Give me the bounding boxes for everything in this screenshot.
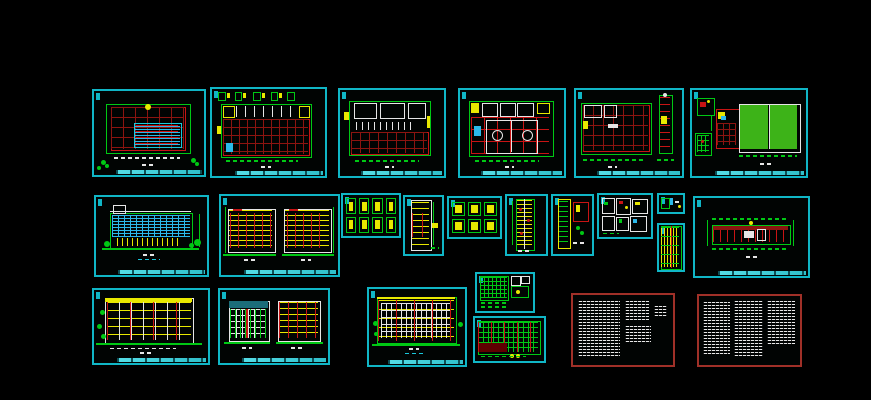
cad-linework (482, 103, 499, 117)
layout-marker (96, 93, 100, 100)
cad-linework (559, 201, 568, 246)
cad-linework (707, 220, 708, 247)
stair-detail-a (505, 194, 548, 256)
drawing-label (143, 254, 156, 256)
cad-linework (576, 226, 580, 230)
door-elevation (372, 198, 382, 214)
detail-cell-fill (349, 220, 354, 229)
cad-linework (511, 120, 512, 152)
door-elevation (386, 217, 396, 233)
drawing-label (746, 256, 757, 258)
detail-cell-fill (487, 205, 493, 213)
cad-linework (481, 356, 527, 357)
door-elevation (372, 217, 382, 233)
tree (100, 310, 105, 315)
layout-marker (342, 92, 346, 99)
cad-linework (217, 126, 222, 135)
detail-cell-fill (455, 205, 461, 213)
detail-cell-fill (389, 202, 394, 211)
general-notes-2 (697, 294, 802, 367)
cad-linework (604, 105, 618, 118)
notes-text (734, 301, 762, 358)
cad-linework (299, 106, 310, 118)
cad-linework (793, 220, 794, 247)
cad-linework (412, 213, 430, 237)
cad-linework (474, 126, 481, 136)
dimension-line (110, 348, 176, 349)
drawing-label (518, 250, 531, 252)
cad-linework (675, 201, 681, 203)
section-elevation (92, 288, 210, 365)
tree (97, 166, 101, 170)
door-elevation (468, 202, 481, 216)
floor-plan-2 (210, 87, 327, 178)
door-elevation (452, 202, 497, 233)
level-dimension (333, 207, 334, 253)
misc-detail (657, 193, 685, 214)
cad-linework (583, 121, 587, 129)
cad-linework (138, 259, 160, 260)
legend-symbol (218, 92, 227, 102)
door-elevation (359, 217, 369, 233)
cad-linework (500, 103, 517, 117)
panel-title-bar (235, 171, 323, 175)
drawing-label (409, 348, 419, 350)
dimension-line (226, 160, 298, 162)
cad-linework (405, 353, 422, 354)
schedule-detail (657, 223, 685, 272)
cad-linework (223, 119, 308, 154)
notes-text (654, 306, 667, 316)
ground-line (276, 342, 322, 344)
drawing-label (385, 166, 394, 168)
layout-marker (462, 92, 466, 99)
cad-linework (584, 105, 602, 118)
cad-linework (431, 247, 439, 249)
ground-line (224, 342, 269, 344)
door-elevation (484, 202, 497, 216)
dimension-line (712, 218, 789, 220)
columns (287, 213, 328, 248)
cad-linework (744, 231, 754, 238)
tree (373, 321, 378, 326)
rear-elevation (367, 287, 467, 367)
dimension-line (739, 155, 797, 157)
cad-linework (516, 290, 520, 294)
notes-text (625, 301, 649, 321)
panel-title-bar (361, 171, 442, 175)
notes-text (578, 301, 620, 358)
cad-linework (633, 219, 637, 222)
cad-linework (226, 143, 234, 152)
cad-linework (671, 226, 672, 267)
arcade-columns (117, 238, 181, 247)
cad-linework (524, 199, 525, 249)
cad-linework (481, 306, 506, 308)
cad-linework (136, 125, 178, 143)
door-elevation (346, 217, 356, 233)
drawing-label (760, 163, 770, 165)
ground-line (282, 254, 335, 256)
cad-linework (471, 103, 478, 113)
cad-linework (717, 123, 736, 145)
columns (230, 213, 271, 248)
panel-title-bar (481, 171, 562, 175)
ground-line (102, 248, 200, 250)
cad-linework (711, 116, 712, 131)
cad-linework (223, 106, 235, 118)
door-elevation (346, 198, 356, 214)
cad-linework (608, 124, 619, 127)
panel-title-bar (597, 171, 680, 175)
tree (105, 164, 109, 168)
layout-marker (98, 199, 102, 206)
drawing-label (301, 259, 312, 261)
drawing-label (142, 164, 153, 166)
cad-linework (351, 132, 427, 153)
cad-linework (246, 309, 248, 338)
toilet-plan-details (597, 193, 653, 239)
cad-linework (769, 105, 770, 149)
layout-marker (697, 200, 701, 207)
detail-cell-fill (362, 202, 367, 211)
floor-plan-3 (338, 88, 446, 178)
cad-linework (378, 300, 455, 342)
level-dimension (225, 207, 226, 253)
tree (97, 324, 102, 329)
window-band (112, 215, 191, 237)
cad-linework (604, 202, 608, 205)
detail-cell-fill (349, 202, 354, 211)
door-elevation (468, 219, 481, 233)
tree (195, 162, 199, 166)
panel-title-bar (244, 270, 336, 274)
panel-title-bar (116, 170, 202, 174)
cad-linework (619, 219, 622, 222)
panel-title-bar (117, 358, 206, 362)
legend-symbol (262, 93, 265, 97)
cad-linework (619, 201, 623, 204)
drawing-label (573, 242, 585, 244)
door-window-details-a (341, 193, 401, 238)
dimension-line (114, 157, 180, 159)
dimension-line (475, 160, 539, 162)
notes-text (703, 302, 730, 355)
cad-linework (701, 140, 704, 143)
cad-linework (354, 103, 378, 119)
tree (101, 334, 106, 339)
mini-plan (602, 216, 614, 231)
cad-linework (233, 209, 242, 211)
door-elevation (359, 198, 369, 214)
cad-linework (700, 102, 706, 107)
layout-marker (96, 292, 100, 299)
tree (374, 332, 378, 336)
panel-title-bar (715, 171, 804, 175)
cad-linework (519, 208, 522, 211)
layout-marker (371, 291, 375, 298)
legend-symbol (253, 92, 262, 102)
legend-symbol (279, 93, 282, 97)
cad-linework (380, 103, 406, 119)
detail-cell-fill (362, 220, 367, 229)
cad-linework (511, 276, 521, 285)
cad-linework (713, 226, 788, 230)
level-dimension (512, 201, 513, 245)
cad-linework (661, 198, 670, 209)
roof-surface (770, 105, 797, 149)
legend-symbol (287, 92, 296, 102)
cad-linework (344, 112, 349, 120)
dimension-line (657, 159, 674, 161)
panel-title-bar (718, 271, 806, 275)
hatch (480, 277, 506, 298)
cad-linework (481, 302, 509, 304)
detail-cell-fill (375, 202, 380, 211)
floor-plan-1 (92, 89, 206, 177)
roof-plan (690, 88, 808, 178)
side-elevations (218, 288, 330, 365)
window-details (475, 272, 535, 313)
dimension-line (712, 248, 789, 250)
cad-linework (537, 103, 550, 114)
floor-plan-5 (574, 88, 684, 178)
level-dimension (199, 214, 200, 247)
cad-linework (625, 206, 628, 209)
detail-cell-fill (389, 220, 394, 229)
roof-surface (740, 105, 767, 149)
door-elevation (346, 198, 396, 232)
dimension-line (583, 159, 644, 161)
strip-floor-plan (693, 196, 810, 278)
detail-cell-fill (487, 222, 493, 230)
building-sections (219, 194, 340, 277)
notes-text (625, 326, 651, 344)
dimension-line (355, 160, 419, 162)
cad-linework (427, 116, 430, 128)
door-elevation (452, 219, 465, 233)
drawing-label (505, 166, 514, 168)
ground-line (223, 254, 276, 256)
cad-linework (660, 97, 671, 150)
layout-marker (222, 292, 226, 299)
cad-linework (356, 122, 414, 130)
drawing-label (244, 259, 255, 261)
cad-linework (517, 103, 534, 117)
cad-linework (107, 302, 191, 340)
curtain-wall-detail (473, 316, 546, 363)
ground-line (96, 343, 202, 345)
panel-title-bar (118, 270, 205, 274)
cad-linework (230, 309, 267, 338)
cad-linework (678, 205, 681, 208)
panel-title-bar (388, 360, 463, 364)
cad-linework (432, 223, 438, 228)
notes-text (767, 301, 795, 344)
cad-drawing-canvas (0, 0, 871, 400)
front-elevation (94, 195, 209, 277)
mini-plan (602, 198, 615, 213)
stair-section-a (403, 195, 444, 256)
panel-title-bar (242, 358, 326, 362)
door-window-details-b (447, 196, 502, 239)
cad-linework (721, 116, 727, 120)
cad-linework (479, 343, 507, 352)
detail-cell-fill (455, 222, 461, 230)
tree (458, 322, 463, 327)
tree (104, 241, 110, 247)
cad-linework (279, 302, 318, 338)
cad-linework (697, 135, 710, 152)
floor-plan-4-basketball-court (458, 88, 566, 178)
drawing-label (291, 347, 302, 349)
cad-linework (603, 233, 619, 234)
door-elevation (386, 198, 396, 214)
cad-linework (408, 103, 427, 119)
cad-linework (289, 209, 298, 211)
door-elevation (452, 202, 465, 216)
ground-line (372, 344, 460, 346)
cad-linework (635, 202, 639, 205)
legend-symbol (235, 92, 243, 102)
drawing-label (242, 347, 253, 349)
cad-linework (521, 276, 530, 284)
cad-linework (661, 116, 667, 124)
layout-marker (578, 92, 582, 99)
general-notes-1 (571, 293, 675, 367)
legend-symbol (271, 92, 279, 102)
legend-symbol (243, 93, 246, 97)
cad-linework (576, 205, 581, 212)
parapet (105, 298, 192, 302)
cad-linework (236, 106, 297, 117)
legend-symbol (227, 93, 230, 97)
cad-linework (670, 198, 674, 205)
detail-cell-fill (471, 205, 477, 213)
cad-linework (757, 229, 766, 240)
detail-cell-fill (375, 220, 380, 229)
cad-linework (580, 231, 584, 235)
drawing-label (140, 352, 151, 354)
detail-cell-fill (471, 222, 477, 230)
door-elevation (484, 219, 497, 233)
drawing-label (261, 166, 271, 168)
roof-band (229, 301, 268, 308)
roof-structure (113, 205, 126, 214)
drawing-label (608, 166, 618, 168)
layout-marker (223, 198, 227, 205)
stair-detail-b (551, 194, 594, 256)
